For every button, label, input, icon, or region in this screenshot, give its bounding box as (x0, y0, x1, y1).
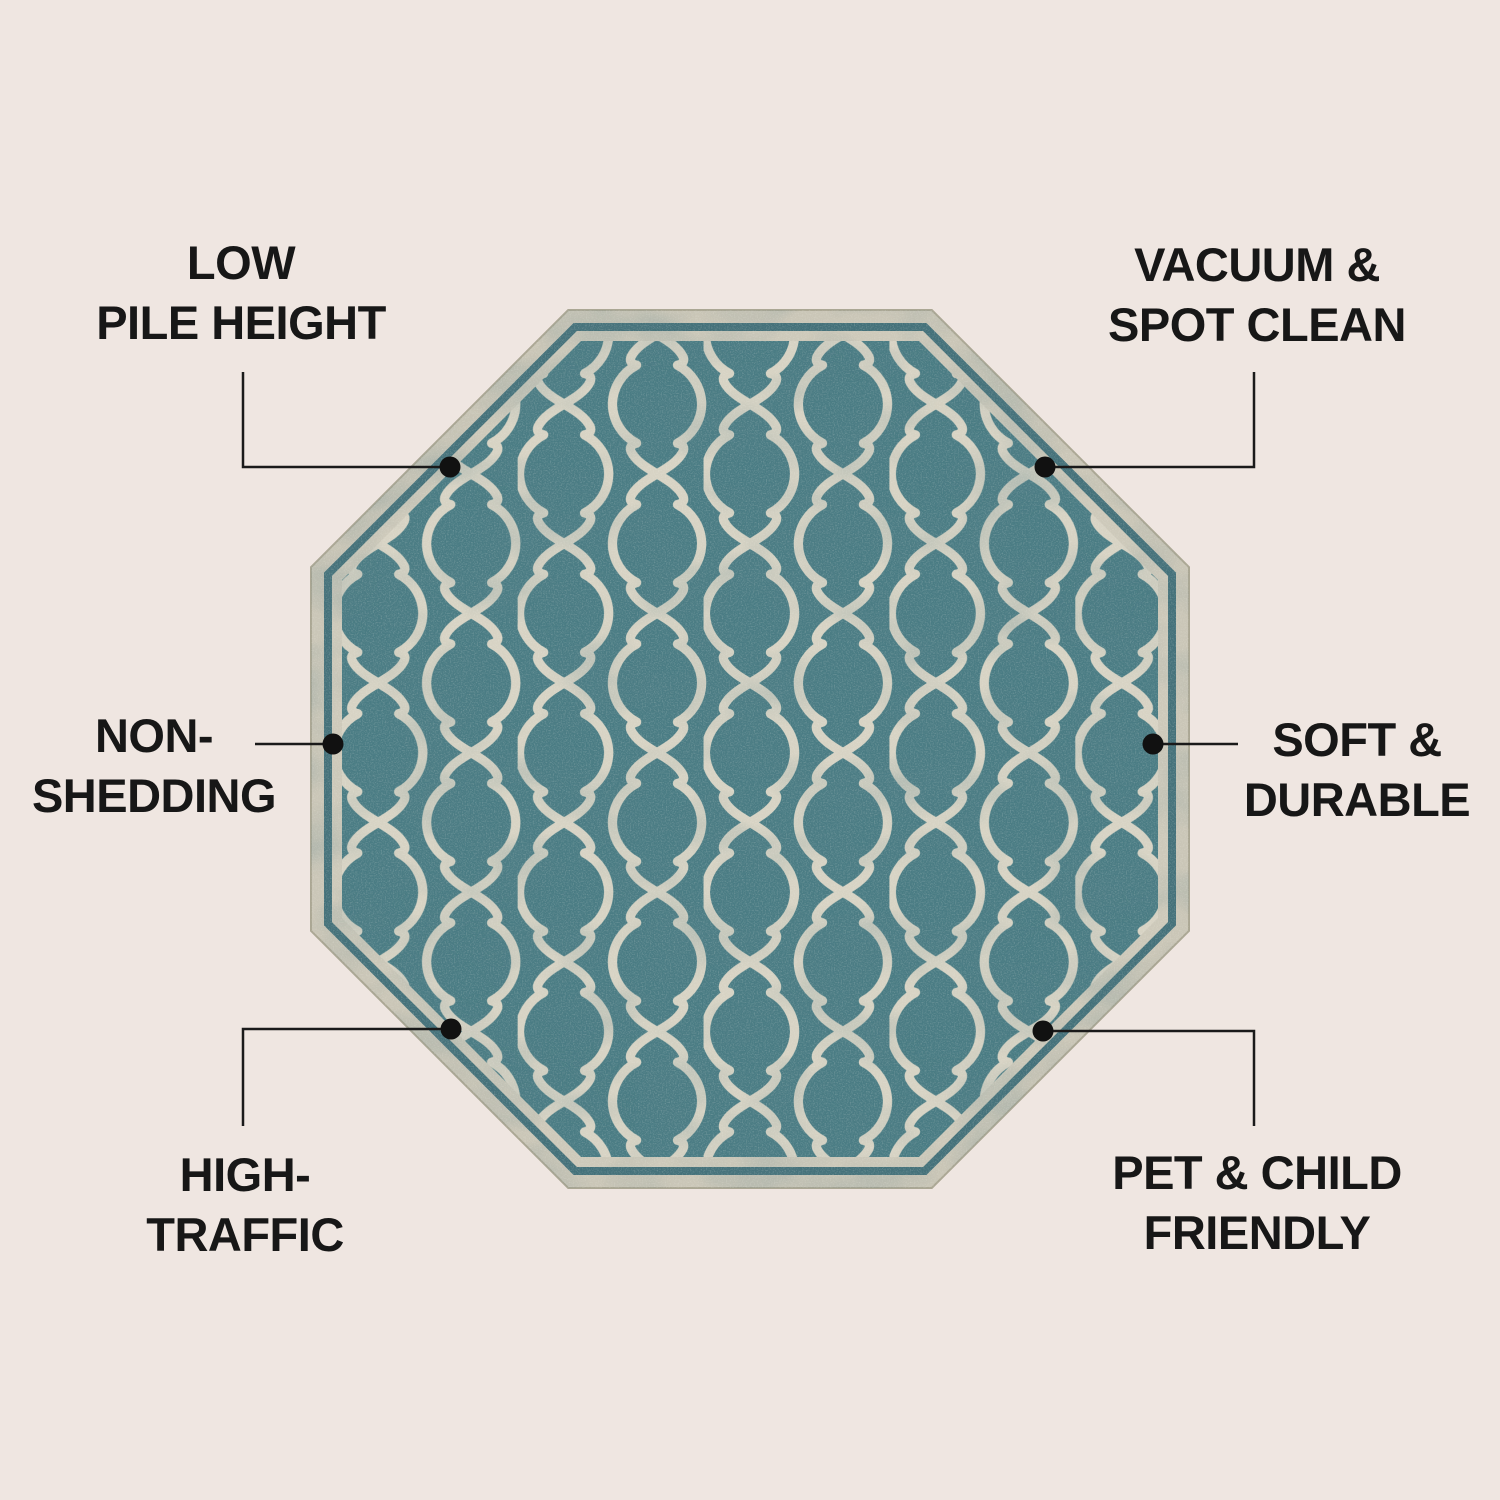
callout-low-pile-height: LOW PILE HEIGHT (96, 233, 386, 353)
callout-soft-durable: SOFT & DURABLE (1244, 710, 1470, 830)
callout-label: VACUUM & (1108, 235, 1406, 295)
callout-label: FRIENDLY (1112, 1203, 1402, 1263)
callout-label: TRAFFIC (146, 1205, 344, 1265)
callout-vacuum-spot-clean: VACUUM & SPOT CLEAN (1108, 235, 1406, 355)
connector-dot-low-pile-height (440, 457, 461, 478)
callout-label: NON- (32, 706, 276, 766)
connector-dot-non-shedding (323, 734, 344, 755)
connector-line-vacuum-spot-clean (1045, 372, 1254, 467)
callout-label: PILE HEIGHT (96, 293, 386, 353)
callout-label: LOW (96, 233, 386, 293)
callout-label: DURABLE (1244, 770, 1470, 830)
connector-dot-pet-child-friendly (1033, 1021, 1054, 1042)
callout-label: PET & CHILD (1112, 1143, 1402, 1203)
connector-dot-soft-durable (1143, 734, 1164, 755)
connector-line-high-traffic (243, 1029, 451, 1126)
callout-label: HIGH- (146, 1145, 344, 1205)
callout-high-traffic: HIGH- TRAFFIC (146, 1145, 344, 1265)
callout-pet-child-friendly: PET & CHILD FRIENDLY (1112, 1143, 1402, 1263)
callout-label: SPOT CLEAN (1108, 295, 1406, 355)
connector-dot-vacuum-spot-clean (1035, 457, 1056, 478)
callout-non-shedding: NON- SHEDDING (32, 706, 276, 826)
connector-line-low-pile-height (243, 372, 450, 467)
callout-label: SOFT & (1244, 710, 1470, 770)
rug-texture (311, 310, 1189, 1188)
product-feature-image: LOW PILE HEIGHT VACUUM & SPOT CLEAN NON-… (0, 0, 1500, 1500)
callout-label: SHEDDING (32, 766, 276, 826)
connector-dot-high-traffic (441, 1019, 462, 1040)
